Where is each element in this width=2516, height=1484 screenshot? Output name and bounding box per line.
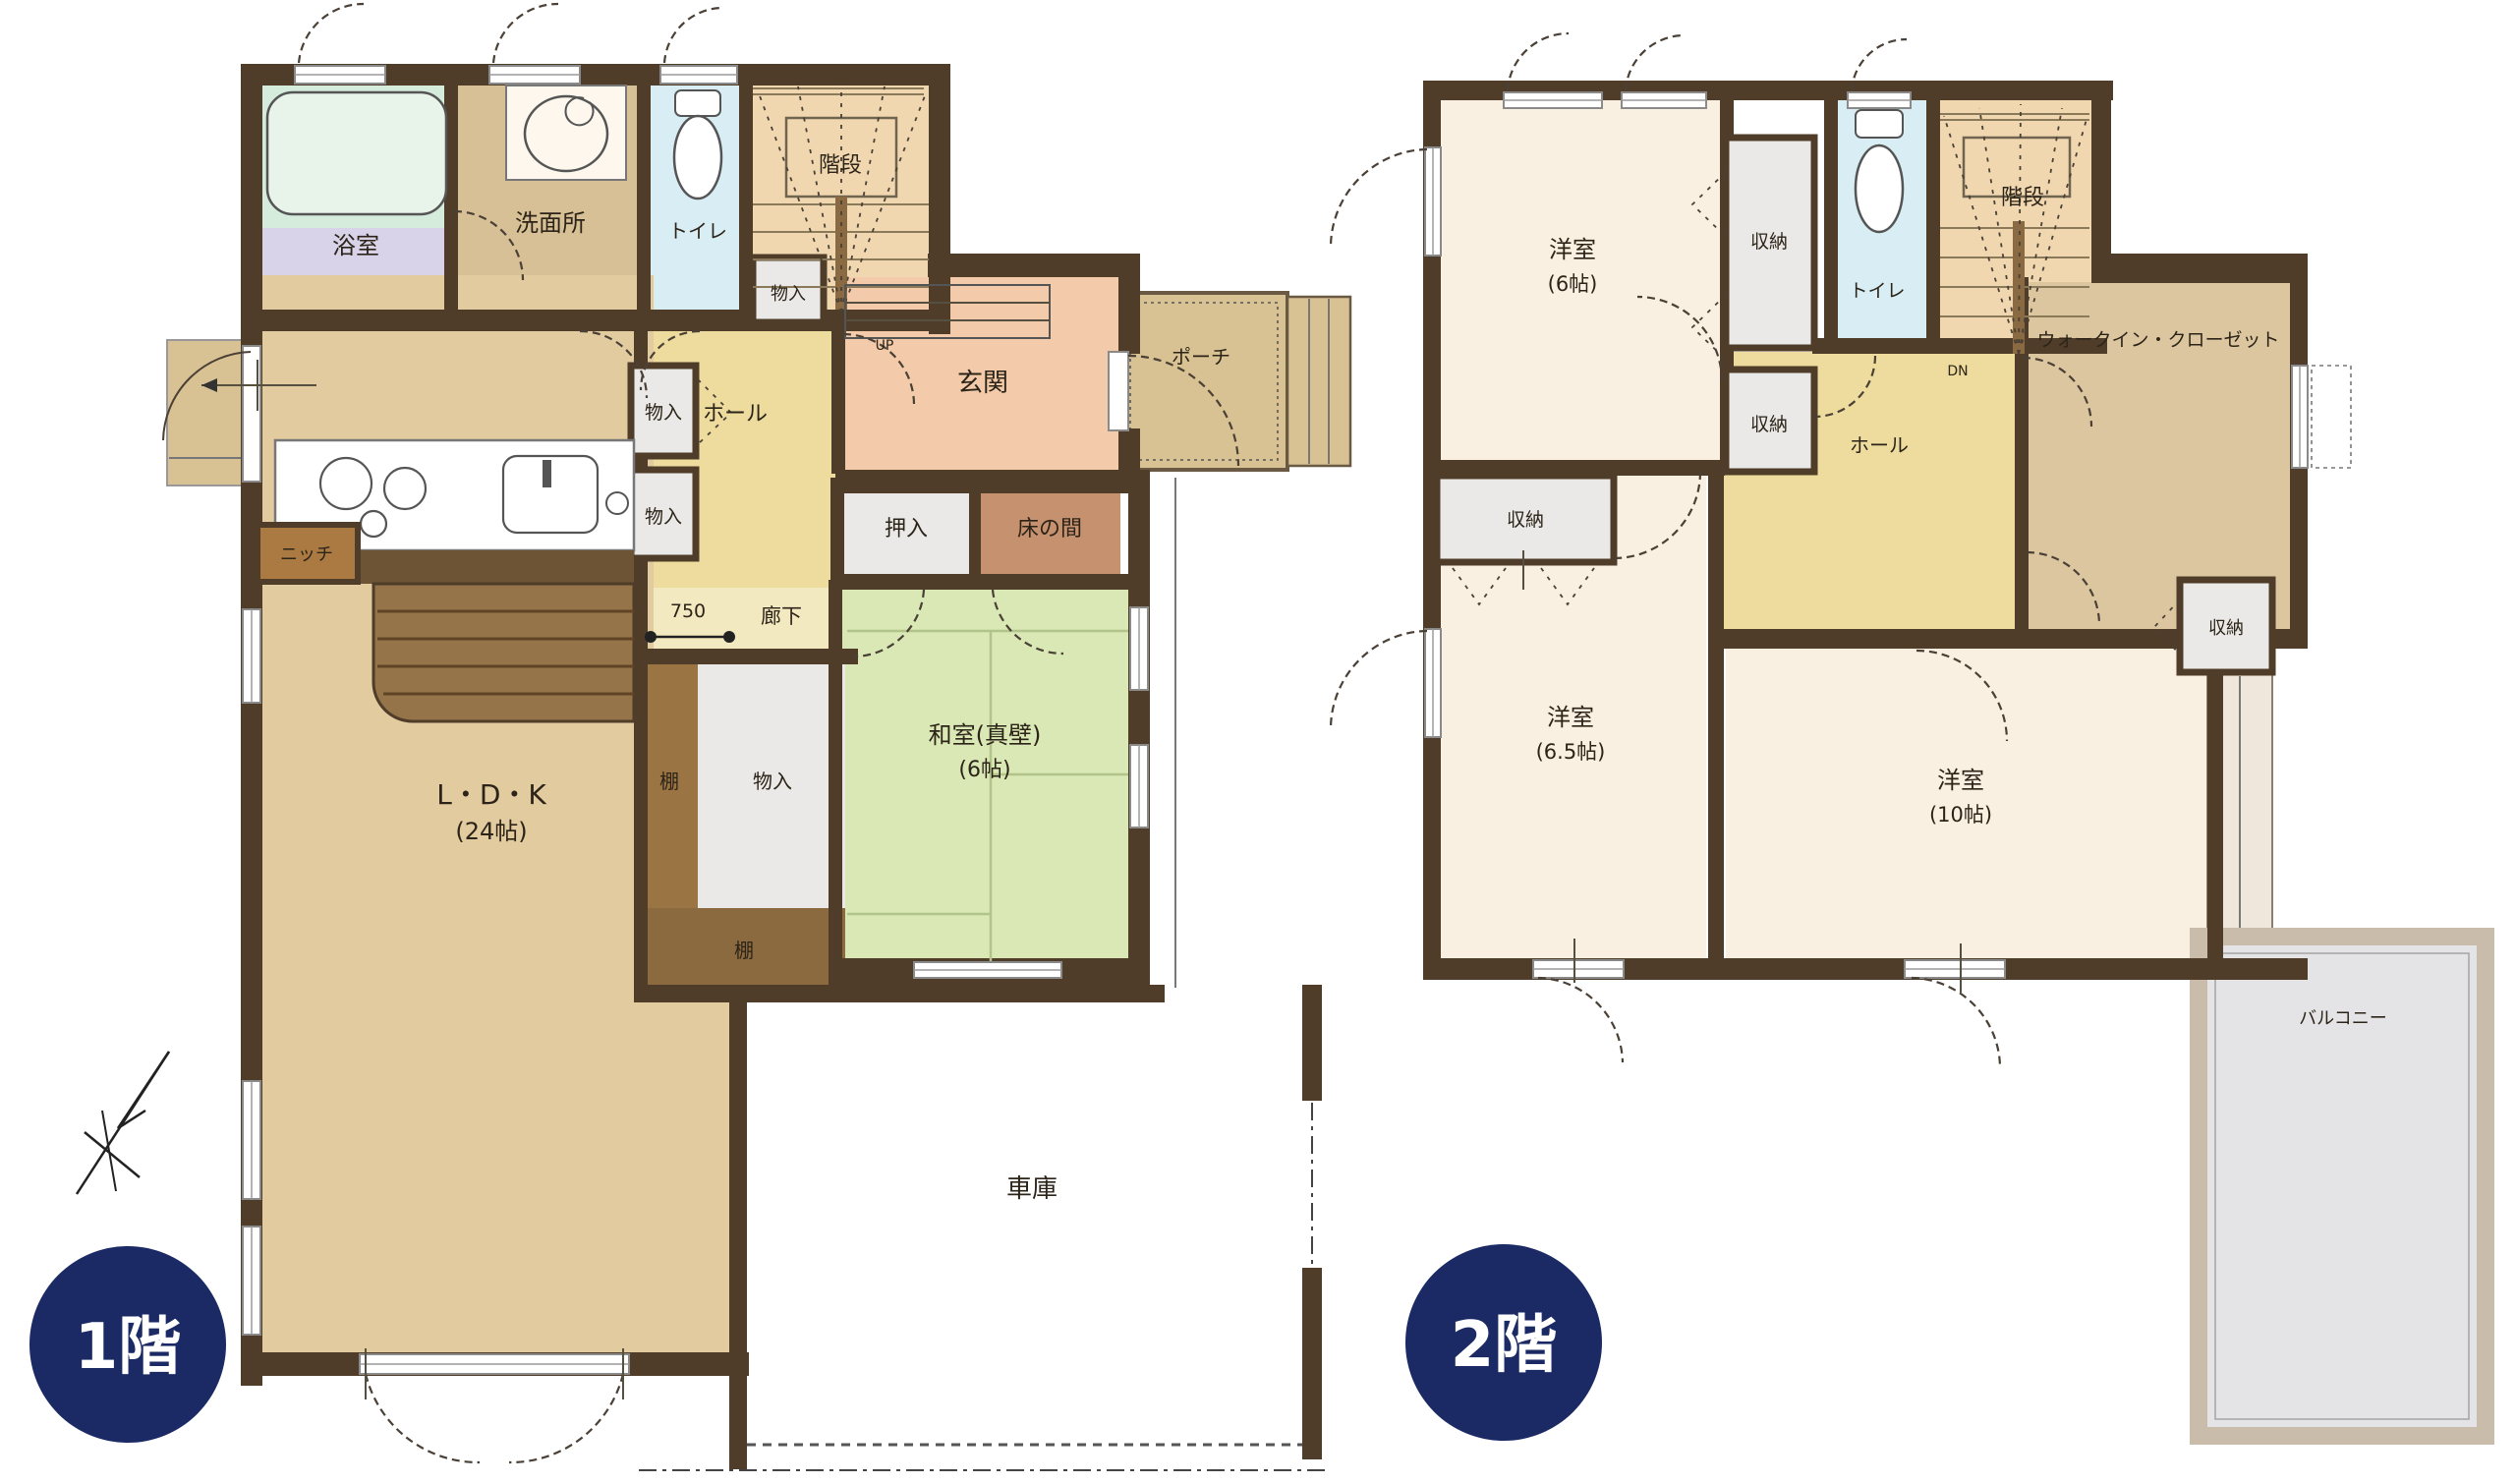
entrance-label: 玄関	[957, 369, 1008, 398]
shelf-bottom-label: 棚	[734, 939, 754, 962]
storage-center-label: 物入	[753, 770, 792, 793]
north-compass-icon	[77, 1052, 169, 1194]
closet-b-label: 収納	[1750, 414, 1788, 435]
bedroom65-label: 洋室	[1547, 704, 1594, 731]
up-label: UP	[876, 338, 894, 354]
ldk-label: L・D・K	[436, 778, 546, 811]
hall-storage1-label: 物入	[645, 402, 682, 424]
wic-window-outer	[2312, 366, 2351, 468]
kitchen-bench	[373, 584, 634, 721]
second-floor-plan: 洋室 (6帖) 収納 トイレ 階段 DN 収納 ホール ウォークイン・クローゼッ…	[1331, 33, 2494, 1445]
porch-label: ポーチ	[1172, 345, 1230, 369]
shelf-left-label: 棚	[659, 770, 679, 793]
storage-under-stairs-label: 物入	[771, 284, 806, 305]
bedroom6-label: 洋室	[1549, 236, 1596, 263]
toilet-icon	[674, 90, 721, 199]
washitsu-size-label: (6帖)	[958, 758, 1010, 782]
toilet2-icon	[1856, 110, 1903, 232]
ldk-size-label: (24帖)	[455, 818, 527, 845]
bathroom-label: 浴室	[332, 232, 379, 259]
corridor-label: 廊下	[761, 604, 802, 628]
counter-front	[342, 550, 634, 584]
niche-label: ニッチ	[280, 544, 333, 565]
floorplan-drawing: 浴室 洗面所 トイレ 階段 物入 UP ホール 物入 物入 玄関 ポーチ 押入 …	[0, 0, 2516, 1484]
bedroom6-size-label: (6帖)	[1548, 272, 1598, 296]
washroom-label: 洗面所	[515, 209, 586, 237]
toilet2-label: トイレ	[1849, 280, 1905, 302]
balcony	[2190, 928, 2494, 1445]
washitsu-label: 和室(真壁)	[929, 721, 1042, 749]
floor1-badge-label: 1階	[75, 1311, 182, 1384]
porch-floor	[1120, 293, 1287, 470]
floor2-badge: 2階	[1405, 1244, 1602, 1441]
porch-steps	[1287, 297, 1350, 466]
hall1-label: ホール	[703, 402, 768, 427]
balcony-label: バルコニー	[2299, 1008, 2387, 1029]
stairs2-label: 階段	[2001, 186, 2044, 210]
bedroom10-label: 洋室	[1937, 767, 1984, 794]
closet-c-label: 収納	[1507, 509, 1544, 531]
bedroom65-size-label: (6.5帖)	[1536, 740, 1606, 764]
closet-d-label: 収納	[2208, 618, 2244, 639]
dim750-label: 750	[670, 600, 706, 622]
hall-storage2-label: 物入	[645, 506, 682, 528]
bathtub-icon	[267, 92, 446, 214]
floor1-badge: 1階	[29, 1246, 226, 1443]
floor2-badge-label: 2階	[1451, 1309, 1558, 1382]
backdoor-landing	[167, 340, 246, 485]
hall2-label: ホール	[1850, 433, 1909, 457]
garage-label: 車庫	[1006, 1174, 1058, 1204]
bedroom10-size-label: (10帖)	[1929, 803, 1992, 827]
closet-a-label: 収納	[1750, 231, 1788, 253]
floorplan-canvas: 浴室 洗面所 トイレ 階段 物入 UP ホール 物入 物入 玄関 ポーチ 押入 …	[0, 0, 2516, 1484]
stairs1-label: 階段	[819, 153, 862, 178]
wic-label: ウォークイン・クローゼット	[2036, 329, 2279, 351]
washbasin-icon	[506, 86, 626, 180]
first-floor-plan: 浴室 洗面所 トイレ 階段 物入 UP ホール 物入 物入 玄関 ポーチ 押入 …	[29, 4, 1350, 1470]
dn-label: DN	[1947, 364, 1968, 379]
tokonoma-label: 床の間	[1017, 517, 1082, 542]
oshiire-label: 押入	[885, 517, 928, 542]
toilet1-label: トイレ	[668, 219, 727, 243]
